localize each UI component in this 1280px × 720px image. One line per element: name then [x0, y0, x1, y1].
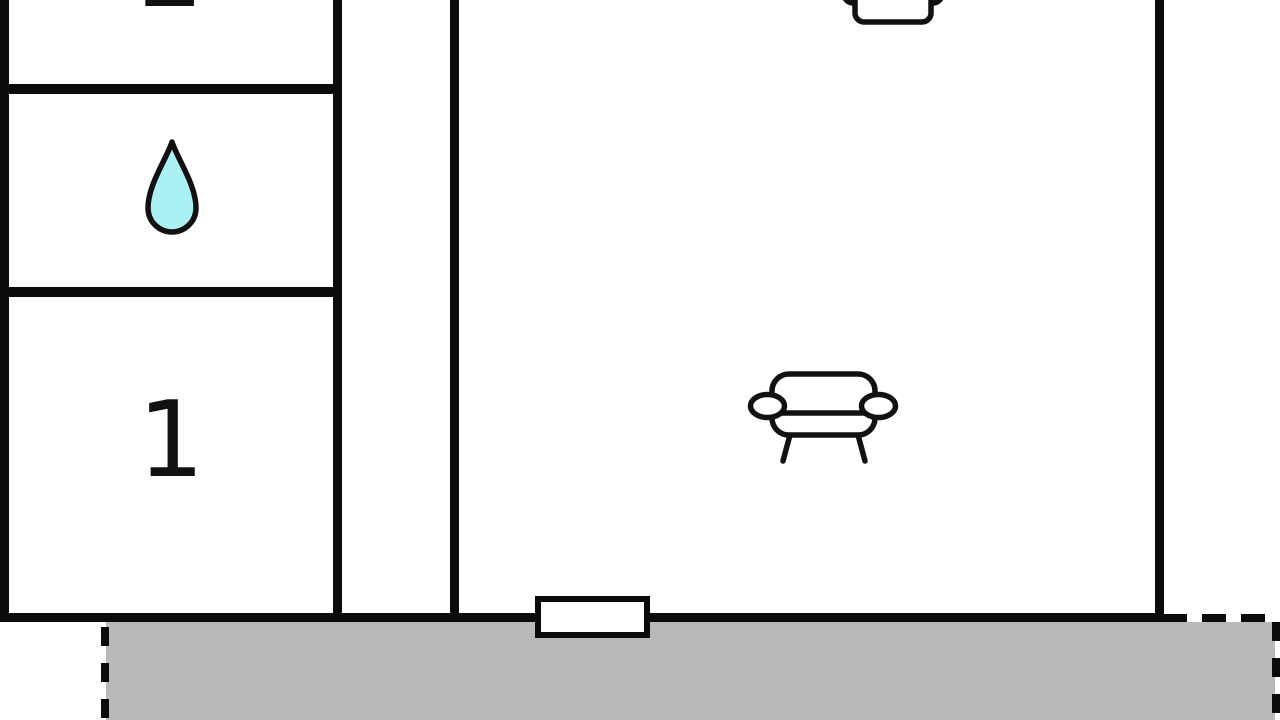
water-drop-icon [142, 139, 202, 240]
door-symbol [535, 596, 650, 638]
wall-living-room-left [450, 0, 459, 622]
terrace-dashed-border-left [101, 627, 109, 720]
room-2-label: 2 [9, 0, 333, 23]
wall-right-exterior [1155, 0, 1164, 621]
wall-divider-bathroom-room1 [0, 287, 342, 297]
terrace-dashed-border-top [1163, 614, 1280, 622]
sofa-icon [744, 369, 902, 464]
living-room [459, 0, 1155, 613]
armchair-icon [828, 0, 958, 30]
floor-plan: 2 1 [0, 0, 1280, 720]
wall-divider-room2-bathroom [0, 84, 342, 94]
room-1-label: 1 [9, 388, 333, 493]
hallway [342, 0, 450, 613]
terrace-dashed-border-right [1272, 622, 1280, 720]
terrace-area [106, 622, 1275, 720]
